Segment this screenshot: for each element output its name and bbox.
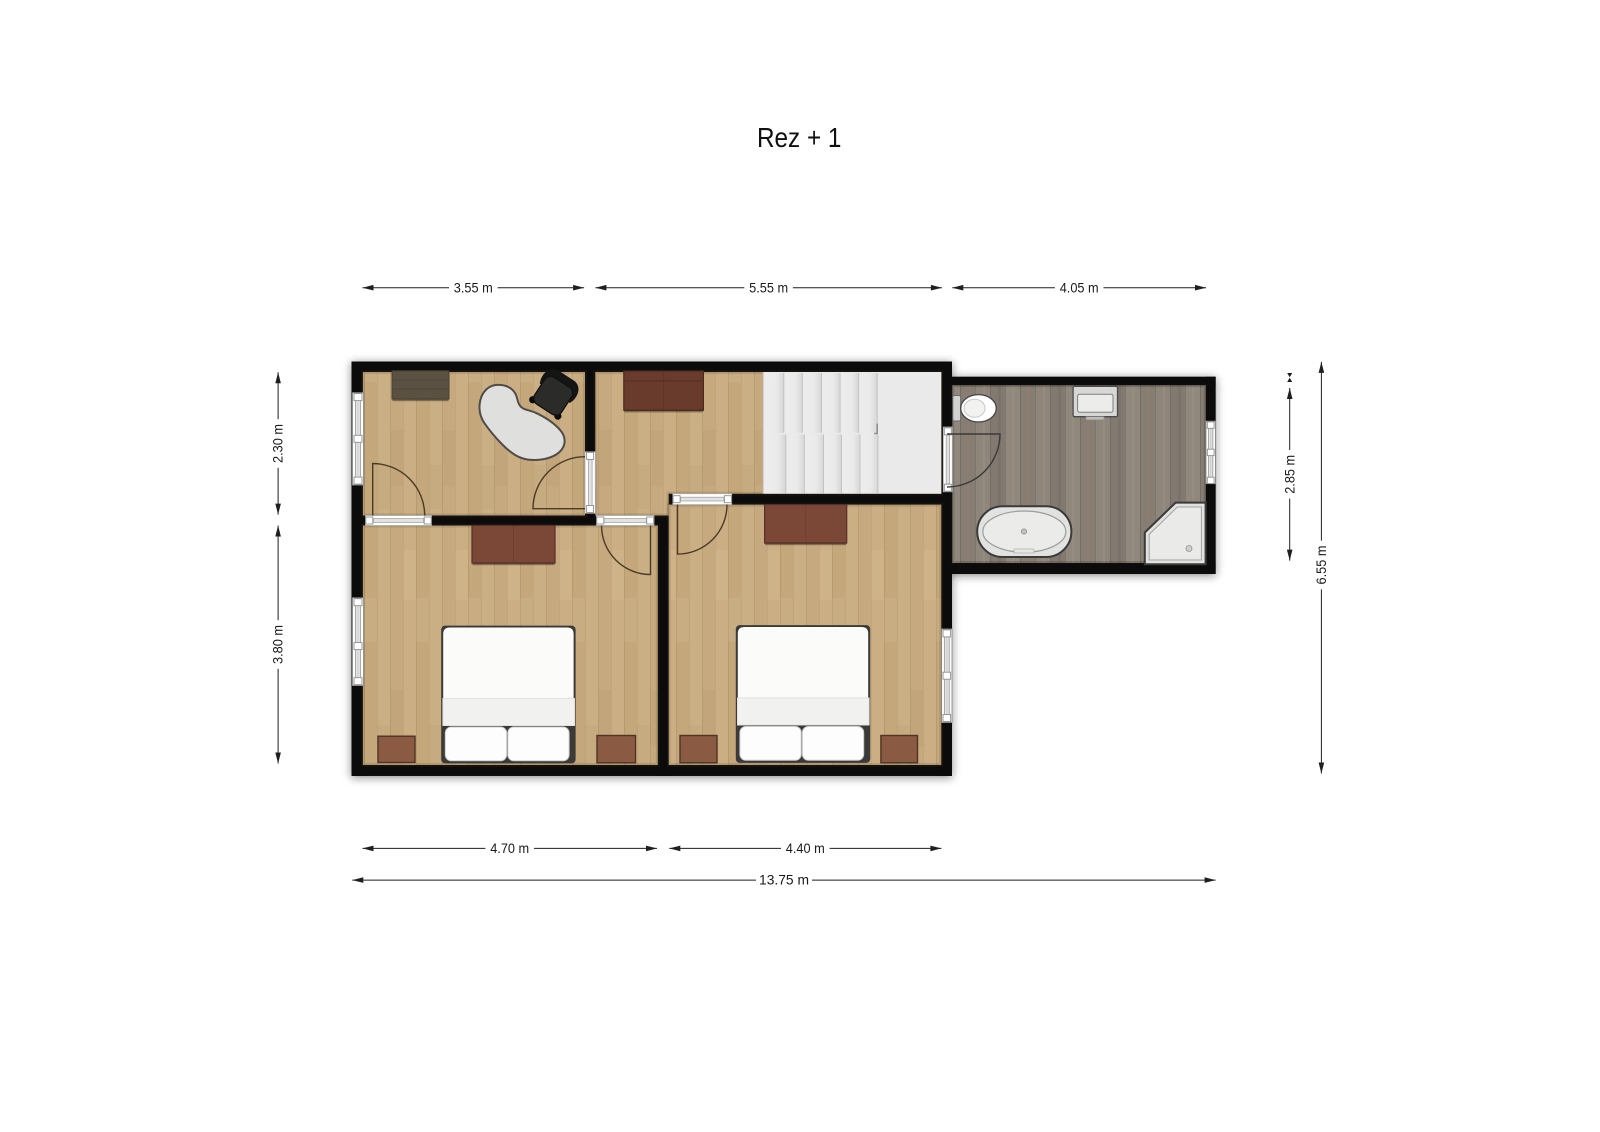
svg-text:13.75 m: 13.75 m xyxy=(759,873,809,888)
svg-text:2.85 m: 2.85 m xyxy=(1282,455,1297,494)
svg-text:4.05 m: 4.05 m xyxy=(1060,280,1099,295)
svg-text:Rez + 1: Rez + 1 xyxy=(757,122,842,153)
svg-text:4.40 m: 4.40 m xyxy=(786,841,825,856)
svg-text:6.55 m: 6.55 m xyxy=(1314,546,1329,585)
svg-text:2.30 m: 2.30 m xyxy=(271,424,286,463)
svg-text:5.55 m: 5.55 m xyxy=(749,280,788,295)
svg-text:4.70 m: 4.70 m xyxy=(490,841,529,856)
svg-text:3.55 m: 3.55 m xyxy=(454,280,493,295)
svg-text:3.80 m: 3.80 m xyxy=(271,625,286,664)
